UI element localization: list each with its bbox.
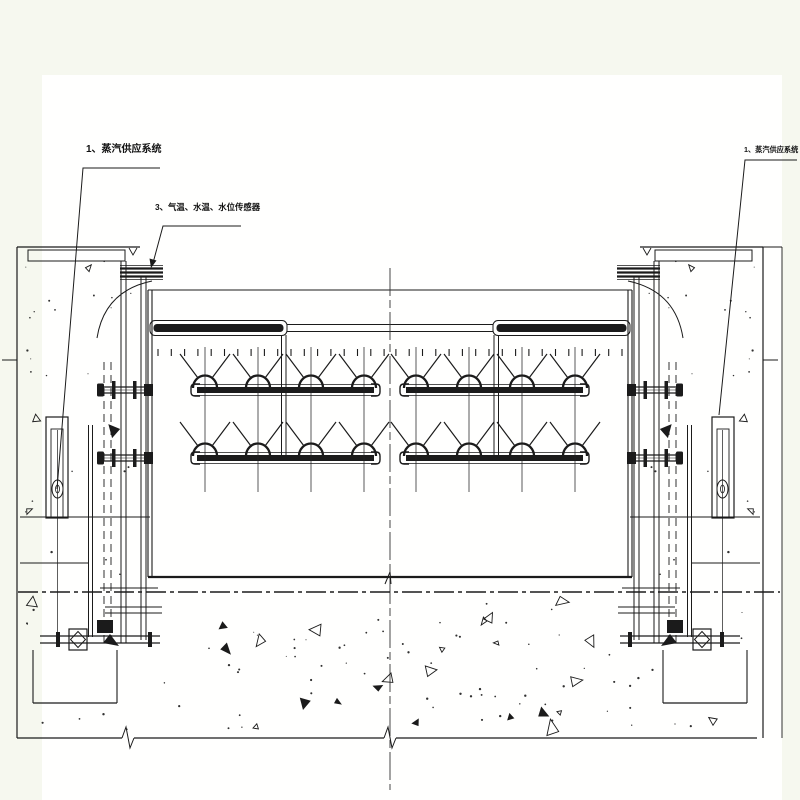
speckle-dot [241,727,242,728]
speckle-dot [71,471,72,472]
speckle-dot [459,636,461,638]
speckle-dot [741,637,743,639]
speckle-dot [305,639,306,640]
speckle-dot [29,317,31,319]
speckle-dot [26,622,28,624]
speckle-dot [30,358,31,359]
speckle-dot [293,639,295,641]
speckle-dot [294,656,296,658]
speckle-dot [119,574,121,576]
flange-plate [133,449,137,467]
speckle-dot [239,714,241,716]
speckle-dot [674,723,675,724]
speckle-dot [544,704,546,706]
speckle-dot [637,677,639,679]
flange-nut [97,384,104,397]
speckle-dot [237,671,239,673]
speckle-dot [253,632,254,633]
speckle-dot [102,713,104,715]
speckle-dot [238,668,240,670]
speckle-dot [524,695,526,697]
speckle-dot [25,511,26,512]
speckle-dot [164,682,165,683]
flange-plate [112,449,116,467]
flange-plate [112,381,116,399]
speckle-dot [607,711,608,712]
speckle-dot [439,622,441,624]
speckle-dot [382,630,384,632]
speckle-dot [310,679,312,681]
speckle-dot [87,373,88,374]
speckle-dot [48,300,50,302]
speckle-dot [609,654,611,656]
speckle-dot [46,375,47,376]
label-sensors: 3、气温、水温、水位传感器 [155,202,261,212]
speckle-dot [528,644,530,646]
speckle-dot [365,632,367,634]
speckle-dot [128,466,130,468]
manifold-pipe [197,387,374,393]
manifold-pipe [197,455,374,461]
flange-nut [97,452,104,465]
speckle-dot [613,681,615,683]
speckle-dot [25,267,26,268]
speckle-dot [459,693,461,695]
speckle-dot [103,260,105,262]
speckle-dot [30,371,32,373]
speckle-dot [402,643,404,645]
drawing-canvas [42,75,782,800]
speckle-dot [286,656,287,657]
speckle-dot [310,692,312,694]
speckle-dot [111,297,113,299]
speckle-dot [741,612,742,613]
speckle-dot [126,728,128,730]
speckle-dot [178,705,180,707]
speckle-dot [377,619,379,621]
speckle-dot [54,309,56,311]
speckle-dot [481,719,483,721]
speckle-dot [505,622,507,624]
speckle-dot [470,695,472,697]
speckle-dot [426,698,428,700]
speckle-dot [228,664,230,666]
label-steam-supply-left: 1、蒸汽供应系统 [86,142,162,155]
speckle-dot [294,647,296,649]
speckle-dot [551,609,553,611]
speckle-dot [26,349,28,351]
speckle-dot [346,662,347,663]
speckle-dot [559,634,560,635]
speckle-dot [79,718,81,720]
speckle-dot [479,688,481,690]
speckle-dot [105,559,107,561]
speckle-dot [93,295,95,297]
speckle-dot [42,722,44,724]
speckle-dot [34,311,35,312]
speckle-dot [455,635,457,637]
speckle-dot [629,685,631,687]
speckle-dot [123,470,125,472]
speckle-dot [494,696,496,698]
speckle-dot [536,668,538,670]
speckle-dot [344,644,346,646]
drawing-page: 1、蒸汽供应系统 3、气温、水温、水位传感器 1、蒸汽供应系统 [0,0,800,800]
speckle-dot [50,551,52,553]
flange-plate [133,381,137,399]
speckle-dot [430,662,432,664]
speckle-dot [407,651,409,653]
engineering-section-drawing: 1、蒸汽供应系统 3、气温、水温、水位传感器 1、蒸汽供应系统 [0,0,800,800]
label-steam-supply-right: 1、蒸汽供应系统 [744,145,799,154]
speckle-dot [32,609,34,611]
speckle-dot [499,715,501,717]
speckle-dot [208,647,210,649]
speckle-dot [486,603,488,605]
speckle-dot [563,685,565,687]
speckle-dot [32,500,34,502]
speckle-dot [690,725,692,727]
speckle-dot [584,668,585,669]
speckle-dot [257,635,258,636]
speckle-dot [228,727,230,729]
speckle-dot [631,725,632,726]
speckle-dot [320,665,322,667]
speckle-dot [364,673,366,675]
pipe-fitting [97,620,113,633]
speckle-dot [111,307,112,308]
speckle-dot [432,707,434,709]
speckle-dot [481,694,483,696]
speckle-dot [338,647,340,649]
speckle-dot [651,669,653,671]
speckle-dot [629,707,631,709]
speckle-dot [130,293,131,294]
speckle-dot [387,657,389,659]
speckle-dot [519,703,520,704]
